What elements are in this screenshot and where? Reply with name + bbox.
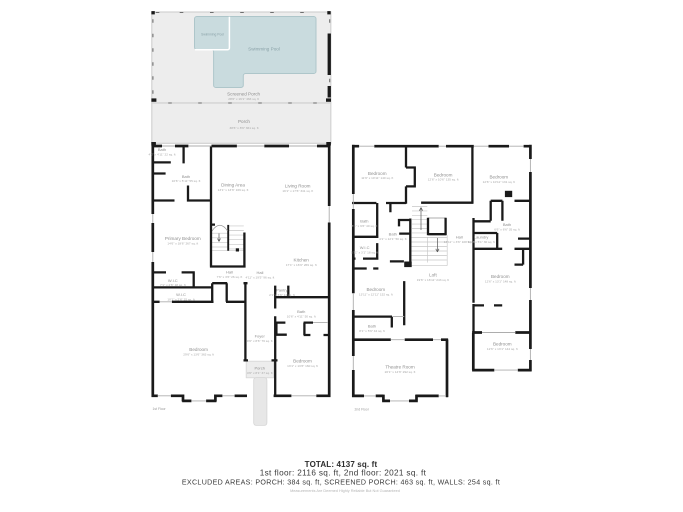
svg-text:Bath: Bath (368, 324, 376, 329)
svg-text:38’6" x 8’6" 361 sq. ft: 38’6" x 8’6" 361 sq. ft (229, 126, 258, 130)
svg-text:5’11" x 5’1" 30 sq. ft: 5’11" x 5’1" 30 sq. ft (468, 240, 495, 244)
svg-text:Living Room: Living Room (285, 183, 311, 188)
svg-text:Bath: Bath (360, 218, 368, 223)
svg-text:Primary Bedroom: Primary Bedroom (165, 236, 201, 241)
svg-text:2nd Floor: 2nd Floor (355, 408, 370, 412)
svg-text:EXCLUDED AREAS: PORCH: 384 sq.: EXCLUDED AREAS: PORCH: 384 sq. ft, SCREE… (182, 479, 500, 487)
svg-text:10’6" x 4’11" 50 sq. ft: 10’6" x 4’11" 50 sq. ft (287, 315, 316, 319)
svg-text:10’1" x 2’6" 25 sq. ft: 10’1" x 2’6" 25 sq. ft (167, 297, 194, 301)
svg-text:20’1" x 14’6" 292 sq. ft: 20’1" x 14’6" 292 sq. ft (385, 370, 416, 374)
svg-text:12’6" x 10’6" 135 sq. ft: 12’6" x 10’6" 135 sq. ft (428, 178, 459, 182)
svg-text:TOTAL: 4137 sq. ft: TOTAL: 4137 sq. ft (305, 460, 378, 469)
svg-text:Loft: Loft (429, 272, 437, 277)
svg-text:Hall: Hall (256, 270, 263, 275)
svg-text:Bedroom: Bedroom (293, 358, 312, 363)
svg-text:Bath: Bath (389, 231, 397, 236)
svg-text:Laundry: Laundry (474, 234, 488, 239)
svg-text:Bedroom: Bedroom (493, 341, 512, 346)
svg-text:7’1" x 2’6" 18 sq. ft: 7’1" x 2’6" 18 sq. ft (160, 283, 186, 287)
svg-text:Bath: Bath (503, 222, 511, 227)
svg-text:5’1" x 9’6" 40 sq. ft: 5’1" x 9’6" 40 sq. ft (352, 224, 378, 228)
svg-text:17’1" x 16’9" 269 sq. ft: 17’1" x 16’9" 269 sq. ft (286, 263, 317, 267)
svg-text:Dining Area: Dining Area (221, 183, 245, 188)
svg-text:12’6" x 10’11" 131 sq. ft: 12’6" x 10’11" 131 sq. ft (483, 180, 515, 184)
svg-text:6’6" x 6’6" 35 sq. ft: 6’6" x 6’6" 35 sq. ft (494, 227, 520, 231)
svg-text:Bath: Bath (158, 147, 166, 152)
svg-text:Bath: Bath (297, 309, 305, 314)
svg-text:Porch: Porch (254, 366, 264, 371)
svg-text:Hall: Hall (226, 269, 233, 274)
svg-text:Bath: Bath (182, 174, 190, 179)
svg-text:10’6" x 5’11" 55 sq. ft: 10’6" x 5’11" 55 sq. ft (172, 179, 201, 183)
svg-text:Theatre Room: Theatre Room (385, 365, 415, 370)
svg-text:W.I.C: W.I.C (176, 292, 186, 297)
svg-text:8’1" x 5’6" 44 sq. ft: 8’1" x 5’6" 44 sq. ft (359, 329, 385, 333)
svg-text:29’6" x 13’6" 363 sq. ft: 29’6" x 13’6" 363 sq. ft (183, 352, 214, 356)
svg-text:Kitchen: Kitchen (294, 257, 310, 262)
svg-text:13’1" x 13’6" 160 sq. ft: 13’1" x 13’6" 160 sq. ft (287, 364, 318, 368)
svg-text:Bedroom: Bedroom (434, 172, 453, 177)
svg-text:W.I.C: W.I.C (168, 278, 178, 283)
svg-text:Swimming Pool: Swimming Pool (248, 47, 280, 52)
svg-text:Screened Porch: Screened Porch (227, 92, 260, 97)
svg-text:13’11" x 12’11" 152 sq. ft: 13’11" x 12’11" 152 sq. ft (359, 292, 393, 296)
svg-text:14’6" x 18’6" 267 sq. ft: 14’6" x 18’6" 267 sq. ft (167, 241, 198, 245)
svg-text:13’1" x 13’6" 169 sq. ft: 13’1" x 13’6" 169 sq. ft (218, 188, 249, 192)
svg-text:W.I.C: W.I.C (360, 245, 370, 250)
svg-text:19’6" x 16’11" 243 sq. ft: 19’6" x 16’11" 243 sq. ft (417, 278, 449, 282)
svg-text:28’6" x 16’1" 463 sq. ft: 28’6" x 16’1" 463 sq. ft (228, 97, 259, 101)
svg-text:4’6" x 8’1" 37 sq. ft: 4’6" x 8’1" 37 sq. ft (247, 371, 273, 375)
svg-text:9’6" x 8’6" 76 sq. ft: 9’6" x 8’6" 76 sq. ft (247, 339, 273, 343)
svg-text:4’1" x 12’1" 50 sq. ft: 4’1" x 12’1" 50 sq. ft (379, 237, 406, 241)
svg-text:19’1" x 17’6" 341 sq. ft: 19’1" x 17’6" 341 sq. ft (282, 189, 313, 193)
svg-text:12’6" x 13’1" 144 sq. ft: 12’6" x 13’1" 144 sq. ft (487, 347, 518, 351)
svg-text:1st floor: 2116 sq. ft, 2nd fl: 1st floor: 2116 sq. ft, 2nd floor: 2021 … (260, 469, 427, 478)
svg-text:11’6" x 10’11" 140 sq. ft: 11’6" x 10’11" 140 sq. ft (361, 176, 393, 180)
svg-text:Porch: Porch (238, 119, 250, 124)
svg-text:Hall: Hall (456, 234, 463, 239)
svg-text:Bedroom: Bedroom (366, 287, 385, 292)
svg-text:2’1" x 6’6" 14 sq. ft: 2’1" x 6’6" 14 sq. ft (269, 293, 295, 297)
svg-text:5’11" x 3’1" 18 sq. ft: 5’11" x 3’1" 18 sq. ft (351, 251, 378, 255)
svg-text:Measurements Are Deemed Highly: Measurements Are Deemed Highly Reliable … (290, 489, 400, 493)
svg-text:Bedroom: Bedroom (189, 347, 208, 352)
svg-text:1st Floor: 1st Floor (153, 407, 167, 411)
svg-text:Swimming Pool: Swimming Pool (201, 33, 224, 37)
svg-text:7’6" x 3’6" 26 sq. ft: 7’6" x 3’6" 26 sq. ft (217, 275, 243, 279)
svg-text:4’11" x 19’5" 96 sq. ft: 4’11" x 19’5" 96 sq. ft (246, 275, 275, 279)
svg-text:Bedroom: Bedroom (368, 171, 387, 176)
svg-text:Foyer: Foyer (255, 334, 266, 339)
svg-text:Bedroom: Bedroom (489, 175, 508, 180)
svg-text:Pantry: Pantry (276, 287, 288, 292)
svg-text:Bedroom: Bedroom (491, 274, 510, 279)
svg-text:12’6" x 13’1" 148 sq. ft: 12’6" x 13’1" 148 sq. ft (485, 279, 516, 283)
svg-text:4’6" x 4’11" 22 sq. ft: 4’6" x 4’11" 22 sq. ft (148, 153, 175, 157)
